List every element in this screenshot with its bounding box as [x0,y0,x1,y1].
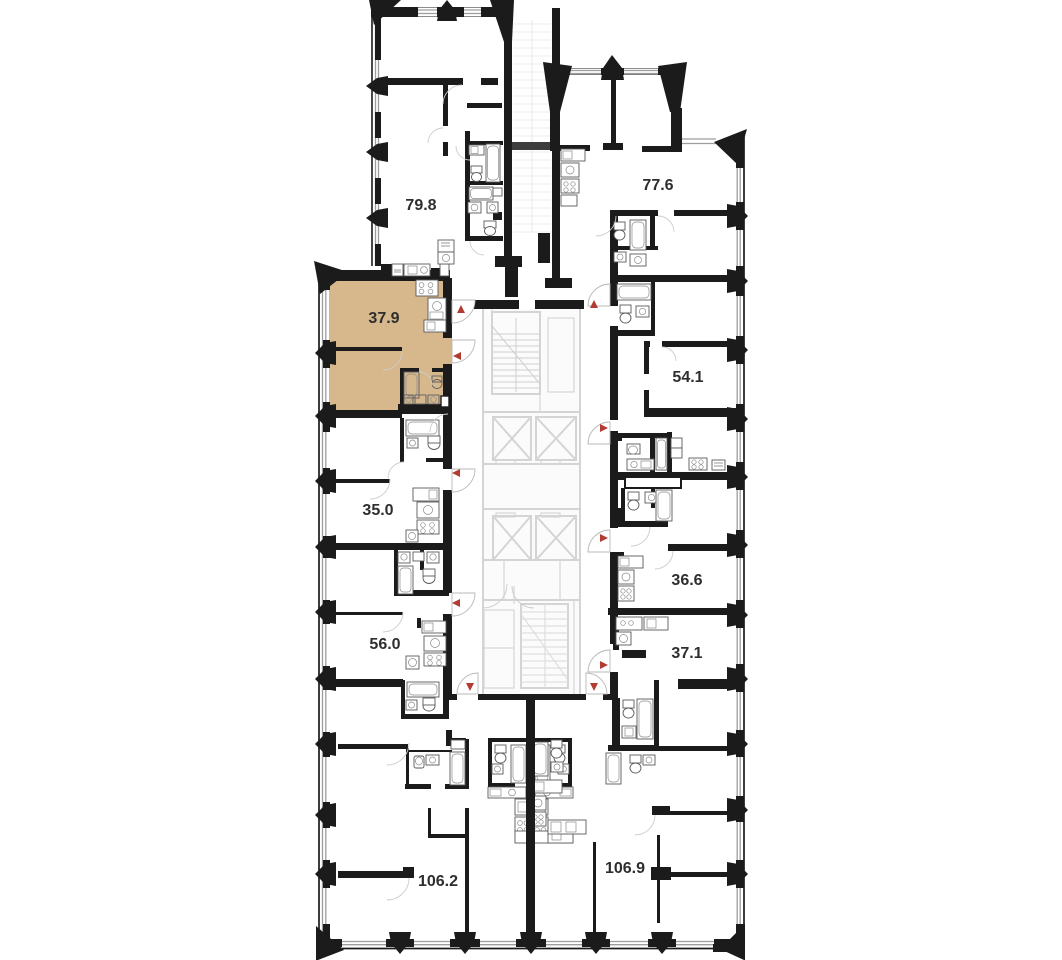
svg-text:106.9: 106.9 [605,860,645,877]
svg-text:56.0: 56.0 [369,636,400,653]
svg-text:36.6: 36.6 [671,572,702,589]
svg-text:37.1: 37.1 [671,645,702,662]
svg-text:54.1: 54.1 [672,369,703,386]
svg-text:106.2: 106.2 [418,873,458,890]
svg-text:77.6: 77.6 [642,177,673,194]
svg-text:37.9: 37.9 [368,310,399,327]
svg-text:35.0: 35.0 [362,502,393,519]
svg-text:79.8: 79.8 [405,197,436,214]
